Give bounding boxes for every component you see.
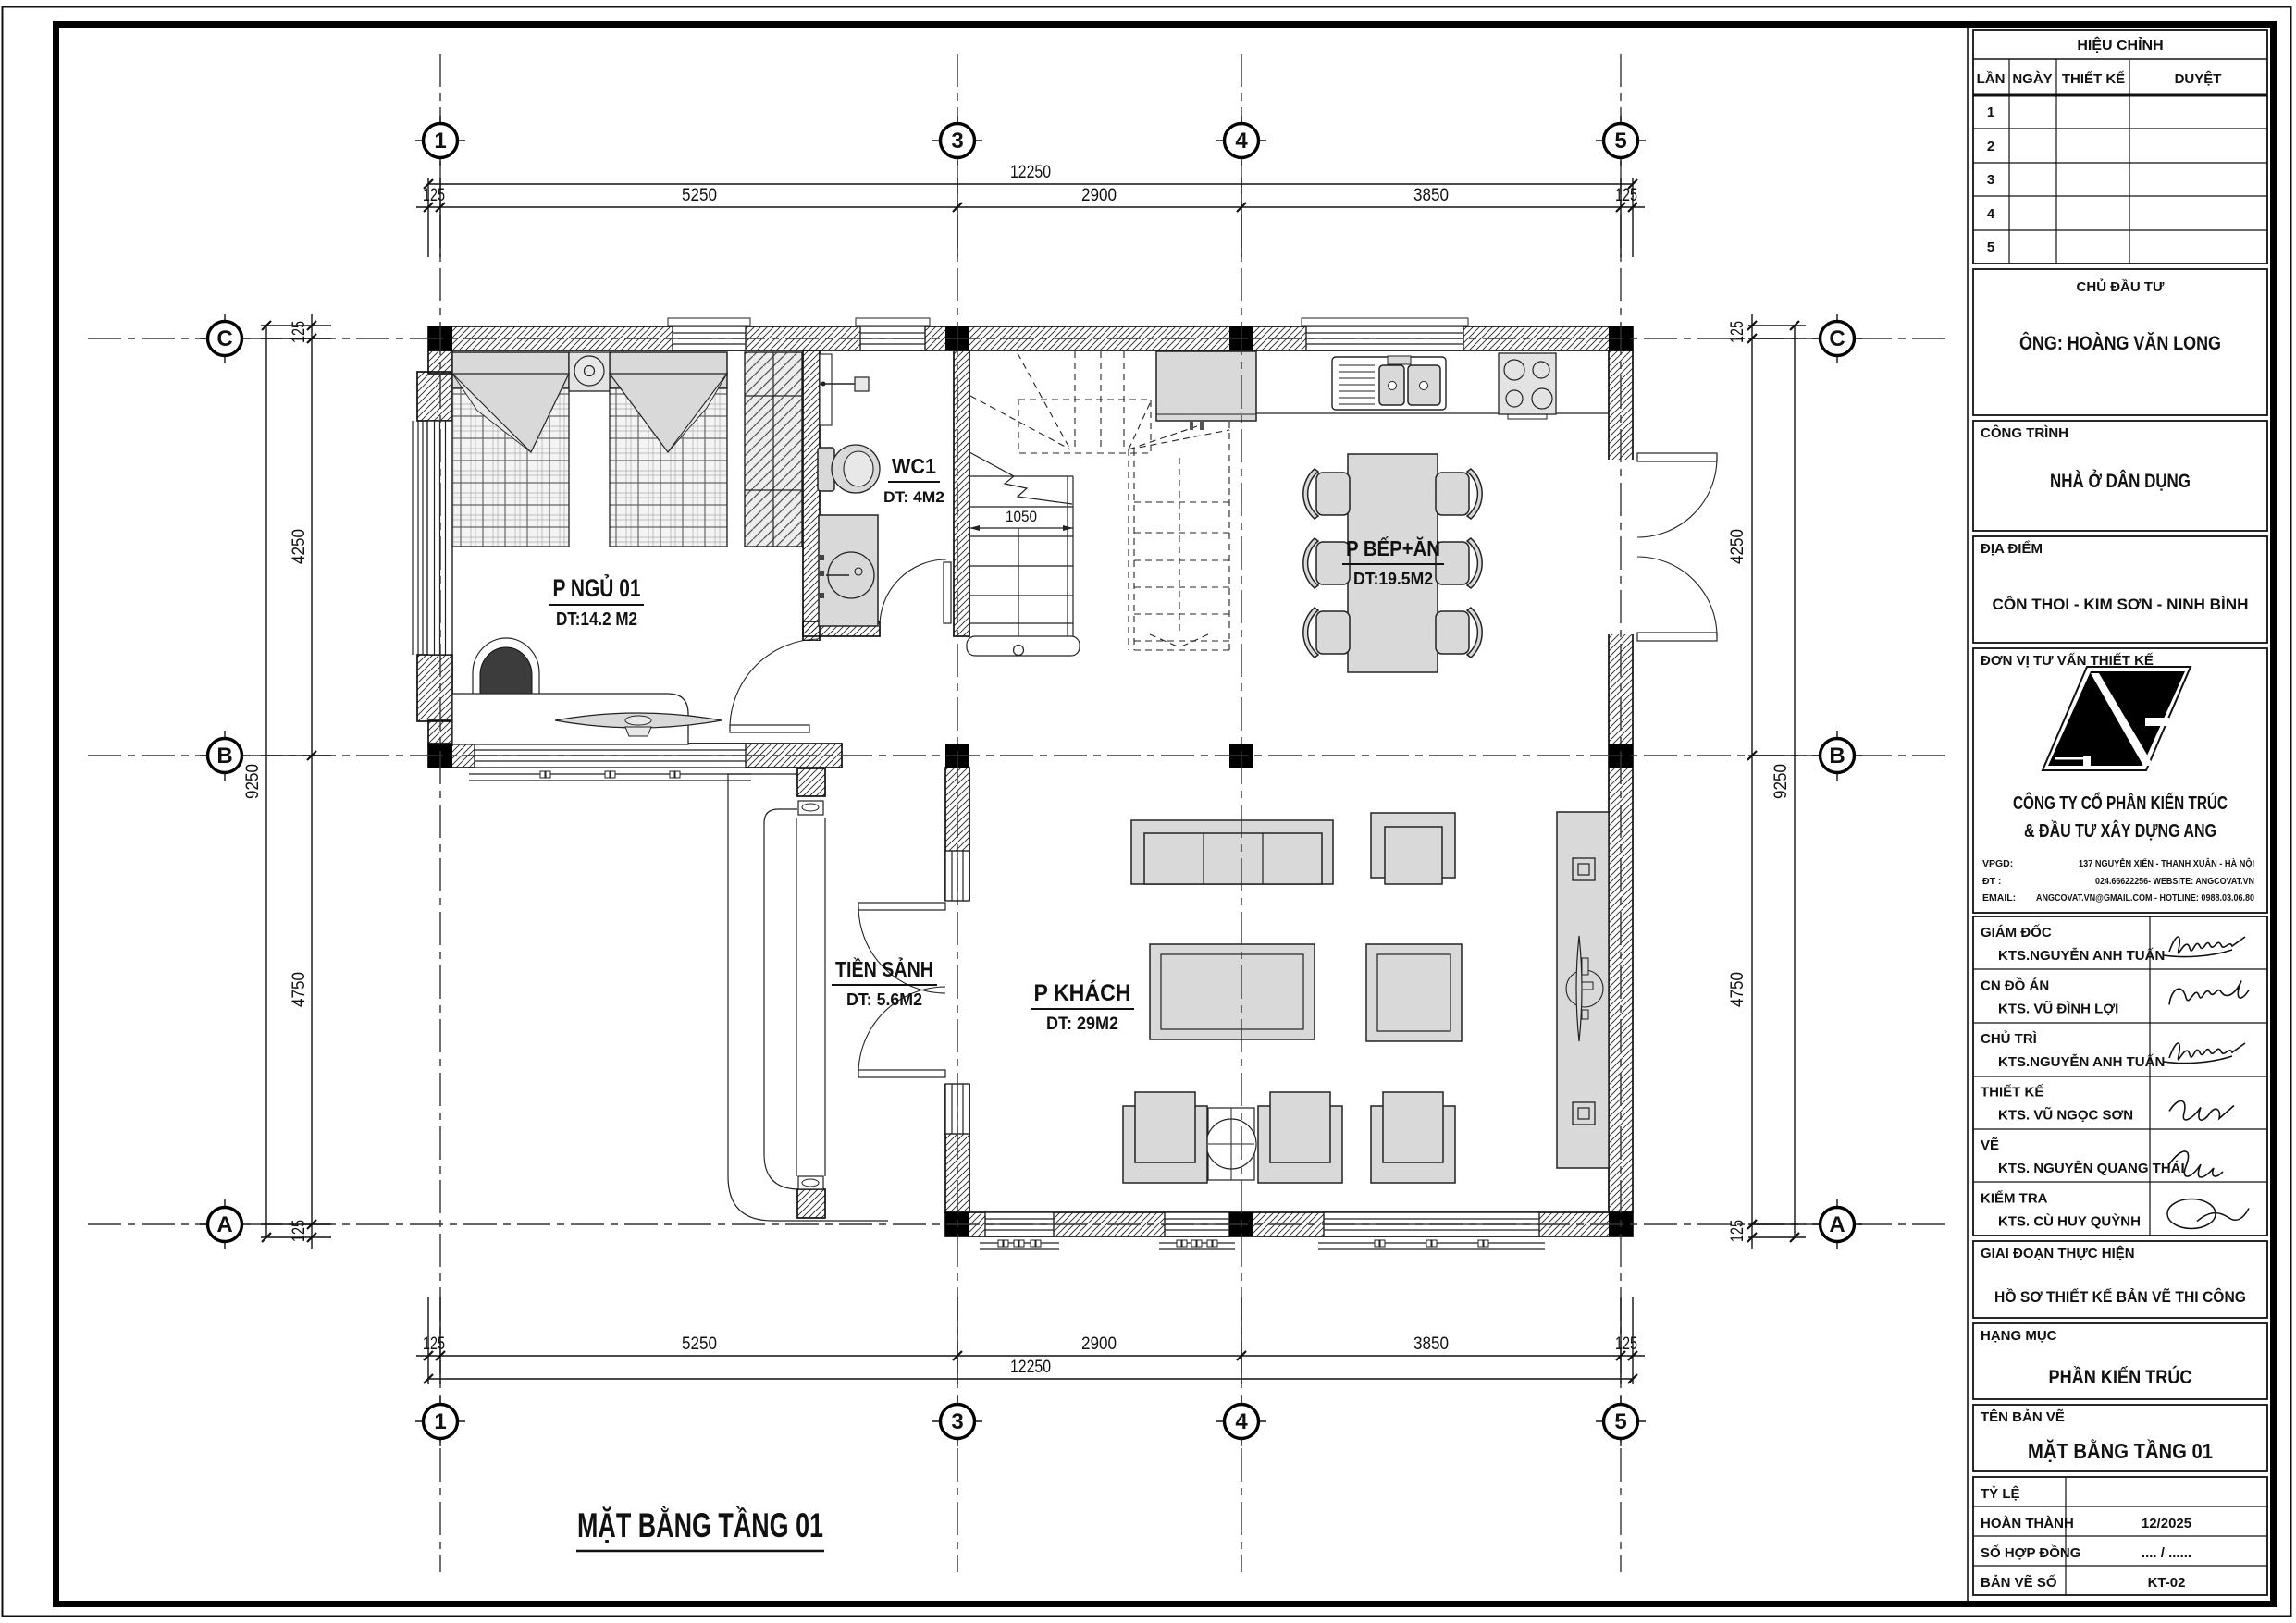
svg-text:5250: 5250 — [682, 1334, 717, 1354]
svg-text:4750: 4750 — [290, 972, 309, 1007]
svg-text:CHỦ ĐẦU TƯ: CHỦ ĐẦU TƯ — [2077, 278, 2165, 295]
svg-text:125: 125 — [1728, 1220, 1747, 1242]
svg-text:137 NGUYỄN XIỂN - THANH XUÂN: 137 NGUYỄN XIỂN - THANH XUÂN - HÀ NỘI — [2079, 857, 2254, 869]
svg-text:CÔNG TY CỔ PHẦN KIẾN TRÚC: CÔNG TY CỔ PHẦN KIẾN TRÚC — [2013, 792, 2228, 814]
svg-text:5250: 5250 — [682, 186, 717, 205]
svg-text:125: 125 — [1728, 321, 1747, 343]
svg-text:DUYỆT: DUYỆT — [2175, 70, 2222, 87]
svg-text:125: 125 — [290, 1220, 309, 1242]
svg-text:GIÁM ĐỐC: GIÁM ĐỐC — [1981, 924, 2052, 941]
svg-text:DT: 29M2: DT: 29M2 — [1046, 1014, 1118, 1034]
svg-text:CÔNG TRÌNH: CÔNG TRÌNH — [1981, 424, 2068, 441]
svg-text:KT-02: KT-02 — [2148, 1575, 2186, 1591]
svg-text:MẶT BẰNG TẦNG 01: MẶT BẰNG TẦNG 01 — [577, 1506, 823, 1544]
svg-text:CỒN THOI - KIM SƠN - NINH BÌNH: CỒN THOI - KIM SƠN - NINH BÌNH — [1993, 596, 2249, 613]
svg-text:HỒ SƠ THIẾT KẾ BẢN VẼ THI CÔNG: HỒ SƠ THIẾT KẾ BẢN VẼ THI CÔNG — [1994, 1287, 2246, 1306]
svg-text:NHÀ Ở DÂN DỤNG: NHÀ Ở DÂN DỤNG — [2050, 470, 2191, 492]
svg-text:DT:14.2 M2: DT:14.2 M2 — [556, 609, 637, 630]
svg-text:2: 2 — [1987, 139, 1994, 154]
svg-text:PHẦN KIẾN TRÚC: PHẦN KIẾN TRÚC — [2049, 1366, 2192, 1388]
svg-text:ÔNG: HOÀNG VĂN LONG: ÔNG: HOÀNG VĂN LONG — [2019, 332, 2221, 354]
svg-text:HOÀN THÀNH: HOÀN THÀNH — [1981, 1516, 2074, 1531]
svg-text:3850: 3850 — [1413, 1334, 1449, 1354]
svg-text:9250: 9250 — [243, 764, 263, 799]
svg-text:1: 1 — [1987, 105, 1994, 120]
svg-text:3: 3 — [951, 1409, 963, 1434]
svg-text:KTS. CÙ HUY QUỲNH: KTS. CÙ HUY QUỲNH — [1998, 1213, 2141, 1230]
svg-text:B: B — [1829, 744, 1845, 768]
svg-text:C: C — [1829, 326, 1845, 351]
svg-text:.... / ......: .... / ...... — [2142, 1545, 2191, 1561]
svg-text:P KHÁCH: P KHÁCH — [1034, 979, 1131, 1006]
svg-text:DT:19.5M2: DT:19.5M2 — [1353, 570, 1433, 588]
svg-text:VẼ: VẼ — [1981, 1137, 1999, 1153]
svg-text:NGÀY: NGÀY — [2012, 71, 2052, 87]
svg-text:BẢN VẼ SỐ: BẢN VẼ SỐ — [1981, 1574, 2057, 1591]
svg-text:MẶT BẰNG TẦNG 01: MẶT BẰNG TẦNG 01 — [2028, 1438, 2213, 1463]
svg-text:TÊN BẢN VẼ: TÊN BẢN VẼ — [1981, 1408, 2065, 1425]
svg-text:4: 4 — [1235, 129, 1248, 154]
svg-text:9250: 9250 — [1771, 764, 1791, 799]
svg-text:5: 5 — [1614, 1409, 1626, 1434]
svg-text:WC1: WC1 — [892, 454, 936, 478]
svg-text:KTS. VŨ NGỌC SƠN: KTS. VŨ NGỌC SƠN — [1998, 1107, 2133, 1124]
svg-text:3: 3 — [951, 129, 963, 154]
svg-text:12250: 12250 — [1010, 1358, 1051, 1377]
svg-text:TỶ LỆ: TỶ LỆ — [1981, 1485, 2020, 1502]
svg-text:KTS. VŨ ĐÌNH LỢI: KTS. VŨ ĐÌNH LỢI — [1998, 1001, 2118, 1017]
svg-text:4: 4 — [1987, 206, 1995, 222]
svg-text:VPGD:: VPGD: — [1982, 858, 2013, 869]
svg-text:125: 125 — [290, 321, 309, 343]
svg-text:3850: 3850 — [1413, 186, 1449, 205]
svg-text:CN ĐỒ ÁN: CN ĐỒ ÁN — [1981, 977, 2049, 994]
svg-text:CHỦ TRÌ: CHỦ TRÌ — [1981, 1030, 2037, 1047]
svg-text:2900: 2900 — [1081, 1334, 1117, 1354]
svg-text:KTS. NGUYỄN QUANG THÁI: KTS. NGUYỄN QUANG THÁI — [1998, 1161, 2185, 1176]
svg-text:ĐỊA ĐIỂM: ĐỊA ĐIỂM — [1981, 540, 2043, 557]
svg-text:THIẾT KẾ: THIẾT KẾ — [2062, 71, 2125, 87]
svg-text:1: 1 — [434, 1409, 446, 1434]
svg-text:TIỀN SẢNH: TIỀN SẢNH — [835, 955, 933, 981]
svg-text:125: 125 — [1615, 1334, 1637, 1354]
svg-text:P NGỦ 01: P NGỦ 01 — [553, 572, 641, 602]
svg-text:125: 125 — [423, 186, 445, 205]
svg-text:A: A — [216, 1212, 232, 1237]
svg-text:5: 5 — [1614, 129, 1626, 154]
svg-text:GIAI ĐOẠN THỰC HIỆN: GIAI ĐOẠN THỰC HIỆN — [1981, 1245, 2135, 1261]
svg-text:THIẾT KẾ: THIẾT KẾ — [1981, 1085, 2043, 1100]
svg-text:4750: 4750 — [1728, 972, 1747, 1007]
svg-text:& ĐẦU TƯ XÂY DỰNG ANG: & ĐẦU TƯ XÂY DỰNG ANG — [2024, 819, 2216, 842]
svg-text:125: 125 — [1615, 186, 1637, 205]
svg-text:5: 5 — [1987, 240, 1994, 255]
svg-text:P BẾP+ĂN: P BẾP+ĂN — [1346, 535, 1440, 560]
svg-text:1: 1 — [434, 129, 446, 154]
svg-text:KTS.NGUYỄN ANH TUẤN: KTS.NGUYỄN ANH TUẤN — [1998, 1054, 2165, 1070]
svg-text:125: 125 — [423, 1334, 445, 1354]
svg-text:HẠNG MỤC: HẠNG MỤC — [1981, 1328, 2057, 1344]
svg-text:B: B — [216, 744, 232, 768]
svg-text:KIỂM TRA: KIỂM TRA — [1981, 1190, 2048, 1207]
svg-text:024.66622256- WEBSITE: ANGCOVA: 024.66622256- WEBSITE: ANGCOVAT.VN — [2095, 876, 2254, 887]
svg-text:HIỆU CHỈNH: HIỆU CHỈNH — [2077, 36, 2163, 54]
svg-text:4250: 4250 — [290, 529, 309, 564]
svg-text:DT: 4M2: DT: 4M2 — [883, 488, 944, 506]
svg-text:1050: 1050 — [1006, 508, 1037, 525]
svg-text:KTS.NGUYỄN ANH TUẤN: KTS.NGUYỄN ANH TUẤN — [1998, 948, 2165, 964]
svg-text:2900: 2900 — [1081, 186, 1117, 205]
svg-text:ANGCOVAT.VN@GMAIL.COM - HOTLIN: ANGCOVAT.VN@GMAIL.COM - HOTLINE: 0988.03… — [2036, 892, 2254, 904]
svg-text:SỐ HỢP ĐỒNG: SỐ HỢP ĐỒNG — [1981, 1544, 2080, 1561]
svg-text:4250: 4250 — [1728, 529, 1747, 564]
svg-text:EMAIL:: EMAIL: — [1982, 892, 2016, 904]
svg-text:A: A — [1829, 1212, 1845, 1237]
svg-text:DT: 5.6M2: DT: 5.6M2 — [846, 990, 922, 1009]
svg-text:4: 4 — [1235, 1409, 1248, 1434]
svg-text:12/2025: 12/2025 — [2142, 1516, 2191, 1531]
svg-text:C: C — [216, 326, 232, 351]
svg-text:LẦN: LẦN — [1977, 71, 2006, 87]
svg-text:3: 3 — [1987, 172, 1994, 188]
svg-text:ĐT :: ĐT : — [1982, 876, 2001, 887]
svg-text:12250: 12250 — [1010, 163, 1051, 182]
